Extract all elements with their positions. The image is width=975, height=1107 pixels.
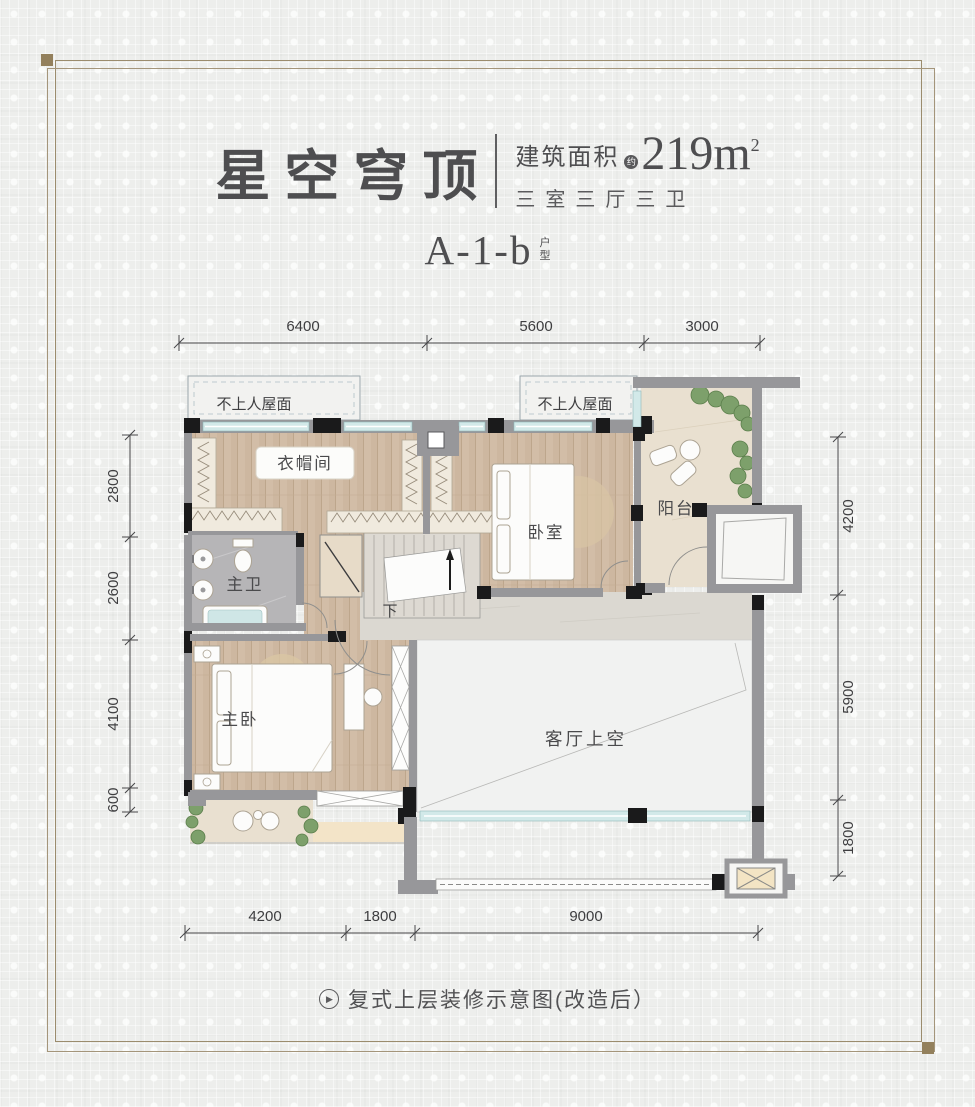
dim-bottom-3: 9000 <box>569 908 602 925</box>
roof-left-label: 不上人屋面 <box>216 396 291 413</box>
nightstand <box>194 774 220 790</box>
wardrobe <box>188 508 282 532</box>
master-bedroom-label: 主卧 <box>222 710 259 729</box>
dim-left-4: 600 <box>105 787 122 812</box>
terrace-stool <box>233 811 253 831</box>
dim-left-3: 4100 <box>105 697 122 730</box>
dimension-chain-bottom: 4200 1800 9000 <box>180 908 763 941</box>
dim-left-2: 2600 <box>105 571 122 604</box>
dimension-chain-right: 4200 5900 1800 <box>830 432 857 881</box>
toilet <box>233 539 253 547</box>
footer-caption: ▶ 复式上层装修示意图(改造后） <box>0 984 975 1014</box>
dim-bottom-1: 4200 <box>248 908 281 925</box>
living-void-label: 客厅上空 <box>545 729 627 749</box>
dim-top-3: 3000 <box>685 318 718 335</box>
dim-top-2: 5600 <box>519 318 552 335</box>
desk-chair <box>364 688 382 706</box>
balcony-table <box>680 440 700 460</box>
master-bath: 主卫 <box>188 535 296 630</box>
dim-left-1: 2800 <box>105 469 122 502</box>
cloakroom-label: 衣帽间 <box>277 454 333 473</box>
terrace-stool <box>261 812 279 830</box>
nightstand <box>194 646 220 662</box>
dimension-chain-left: 2800 2600 4100 600 <box>105 430 138 817</box>
pillow <box>217 671 231 715</box>
roof-areas: 不上人屋面 不上人屋面 <box>188 376 637 420</box>
stairs-down-label: 下 <box>382 603 397 620</box>
pillow <box>497 471 510 519</box>
caption-text: 复式上层装修示意图(改造后） <box>348 984 656 1014</box>
page: 星空穹顶 建筑面积 约 219m 2 三室三厅三卫 A-1-b 户 型 <box>0 0 975 1107</box>
dim-bottom-2: 1800 <box>363 908 396 925</box>
dimension-chain-top: 6400 5600 3000 <box>174 318 765 351</box>
roof-right-label: 不上人屋面 <box>537 396 612 413</box>
bedroom-label: 卧室 <box>528 523 565 542</box>
living-void-area: 客厅上空 <box>417 640 752 812</box>
stair-flight-outline <box>384 548 466 602</box>
play-icon: ▶ <box>319 989 339 1009</box>
dim-top-1: 6400 <box>286 318 319 335</box>
dim-right-2: 5900 <box>840 680 857 713</box>
pillow <box>497 525 510 573</box>
desk <box>344 664 364 730</box>
floor-plan: 不上人屋面 不上人屋面 客厅上空 下 <box>0 0 975 1107</box>
balcony-label: 阳台 <box>658 499 695 518</box>
dim-right-1: 4200 <box>840 499 857 532</box>
master-bath-label: 主卫 <box>227 575 264 594</box>
dim-right-3: 1800 <box>840 821 857 854</box>
wardrobe <box>188 438 216 508</box>
elevator-shaft <box>692 503 802 593</box>
